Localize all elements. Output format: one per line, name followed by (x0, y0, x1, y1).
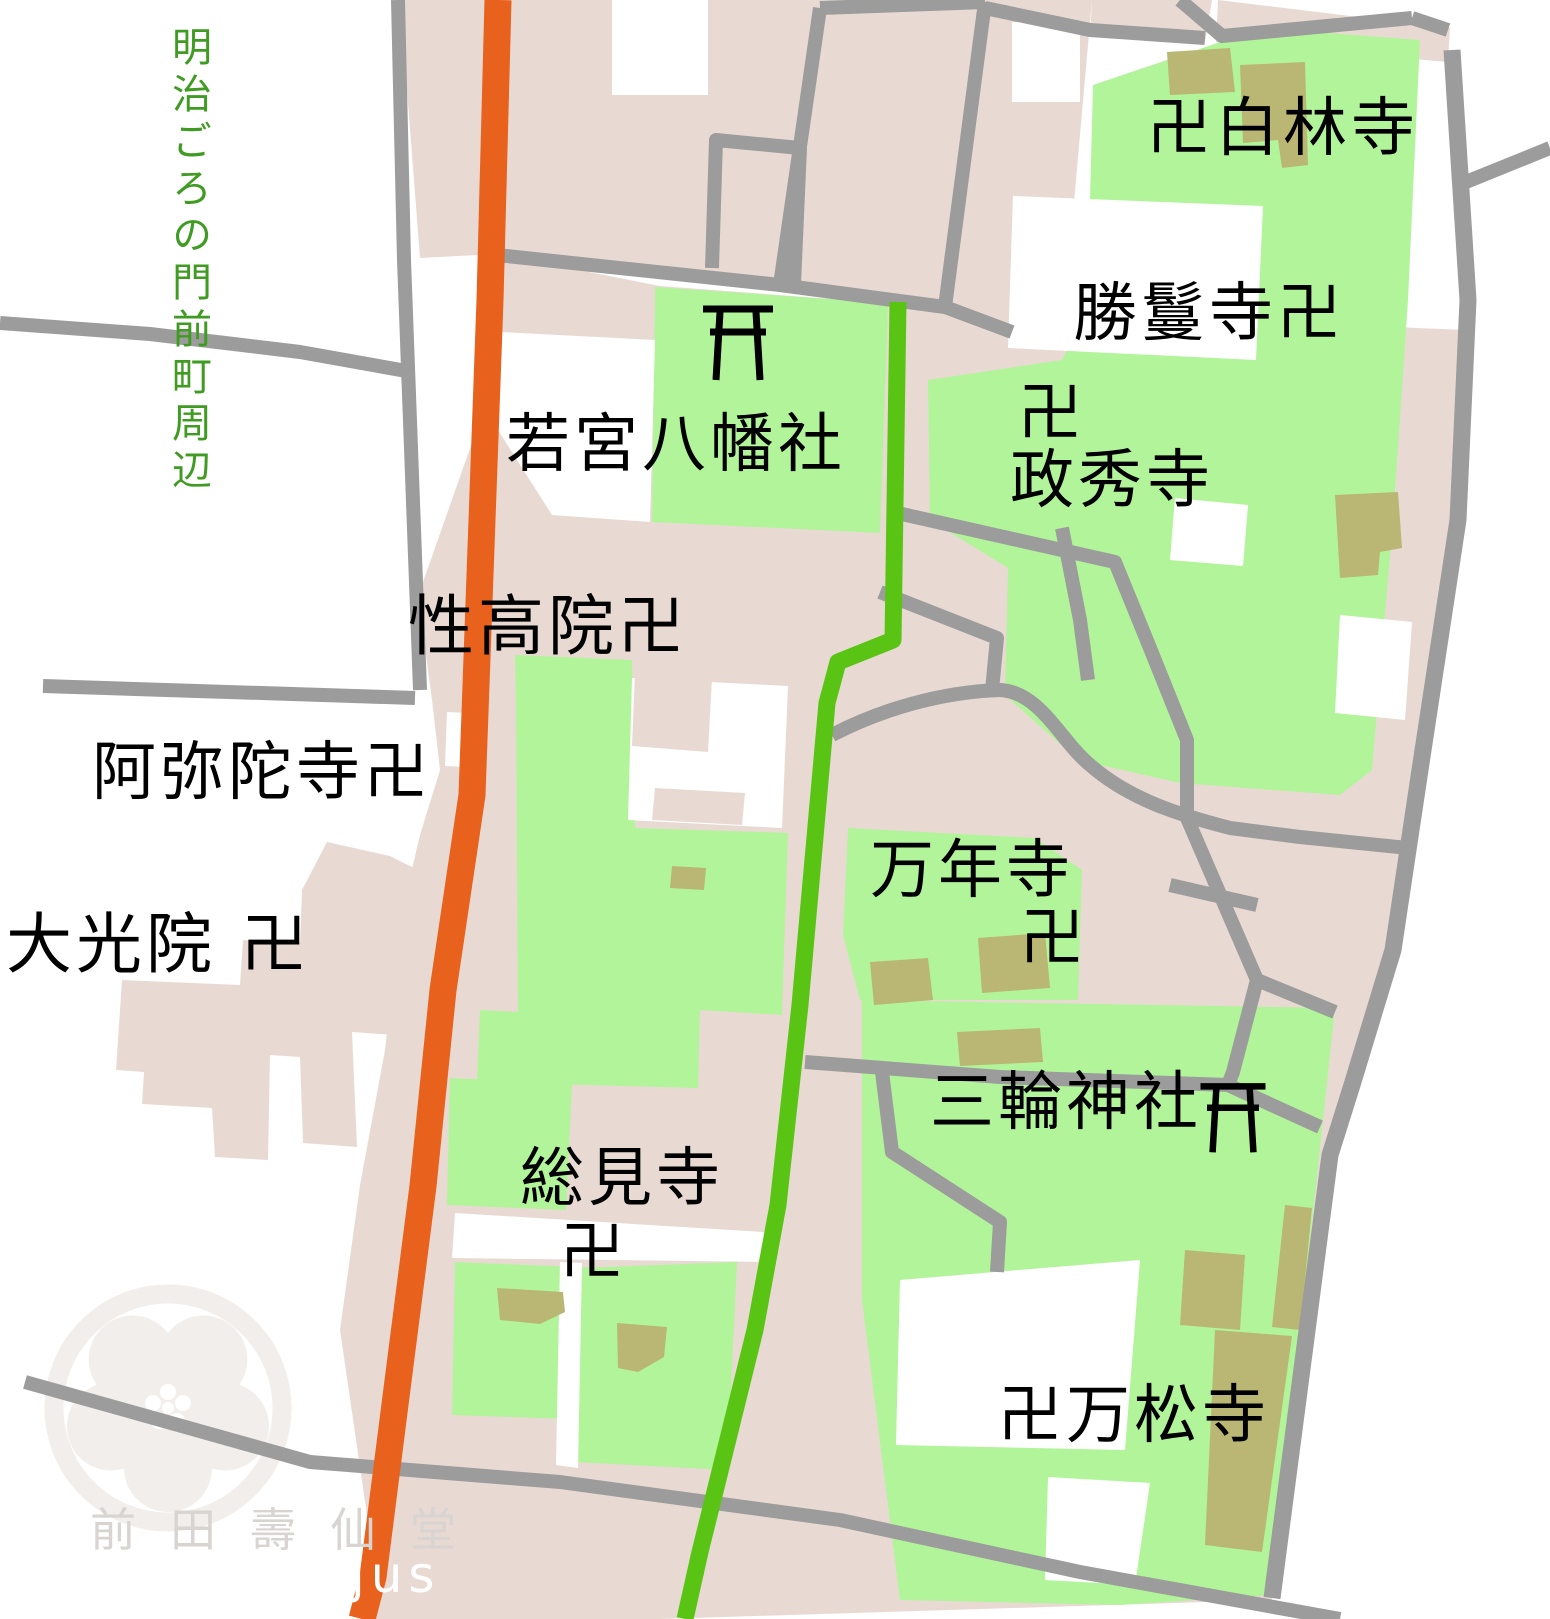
map-title: 明治ごろの門前町周辺 (168, 26, 208, 496)
label-sokenji-manji-icon: 卍 (560, 1220, 628, 1288)
label-amidaji: 阿弥陀寺卍 (92, 740, 432, 808)
label-wakamiya-hachimansha: 若宮八幡社 (506, 412, 846, 480)
label-banshoji: 卍万松寺 (998, 1383, 1270, 1451)
label-seishuji-manji-icon: 卍 (1018, 381, 1086, 449)
label-mannenji: 万年寺 (870, 838, 1074, 906)
label-sokenji: 総見寺 (520, 1146, 724, 1214)
torii-icon (1200, 1078, 1266, 1156)
label-shomanji: 勝鬘寺卍 (1073, 281, 1345, 349)
label-hakurinji: 卍白林寺 (1147, 96, 1419, 164)
label-mannenji-manji-icon: 卍 (1020, 906, 1088, 974)
label-shokoin: 性高院卍 (408, 592, 688, 662)
watermark-url: /jus (328, 1546, 440, 1604)
torii-icon (703, 300, 773, 384)
label-daikoin: 大光院 卍 (6, 910, 311, 980)
map-screenshot: 前田壽仙堂 /jus 明治ごろの門前町周辺 卍白林寺 勝鬘寺卍 卍 政秀寺 若宮… (0, 0, 1550, 1619)
label-seishuji: 政秀寺 (1010, 448, 1214, 516)
label-miwa-jinja: 三輪神社 (930, 1070, 1202, 1138)
